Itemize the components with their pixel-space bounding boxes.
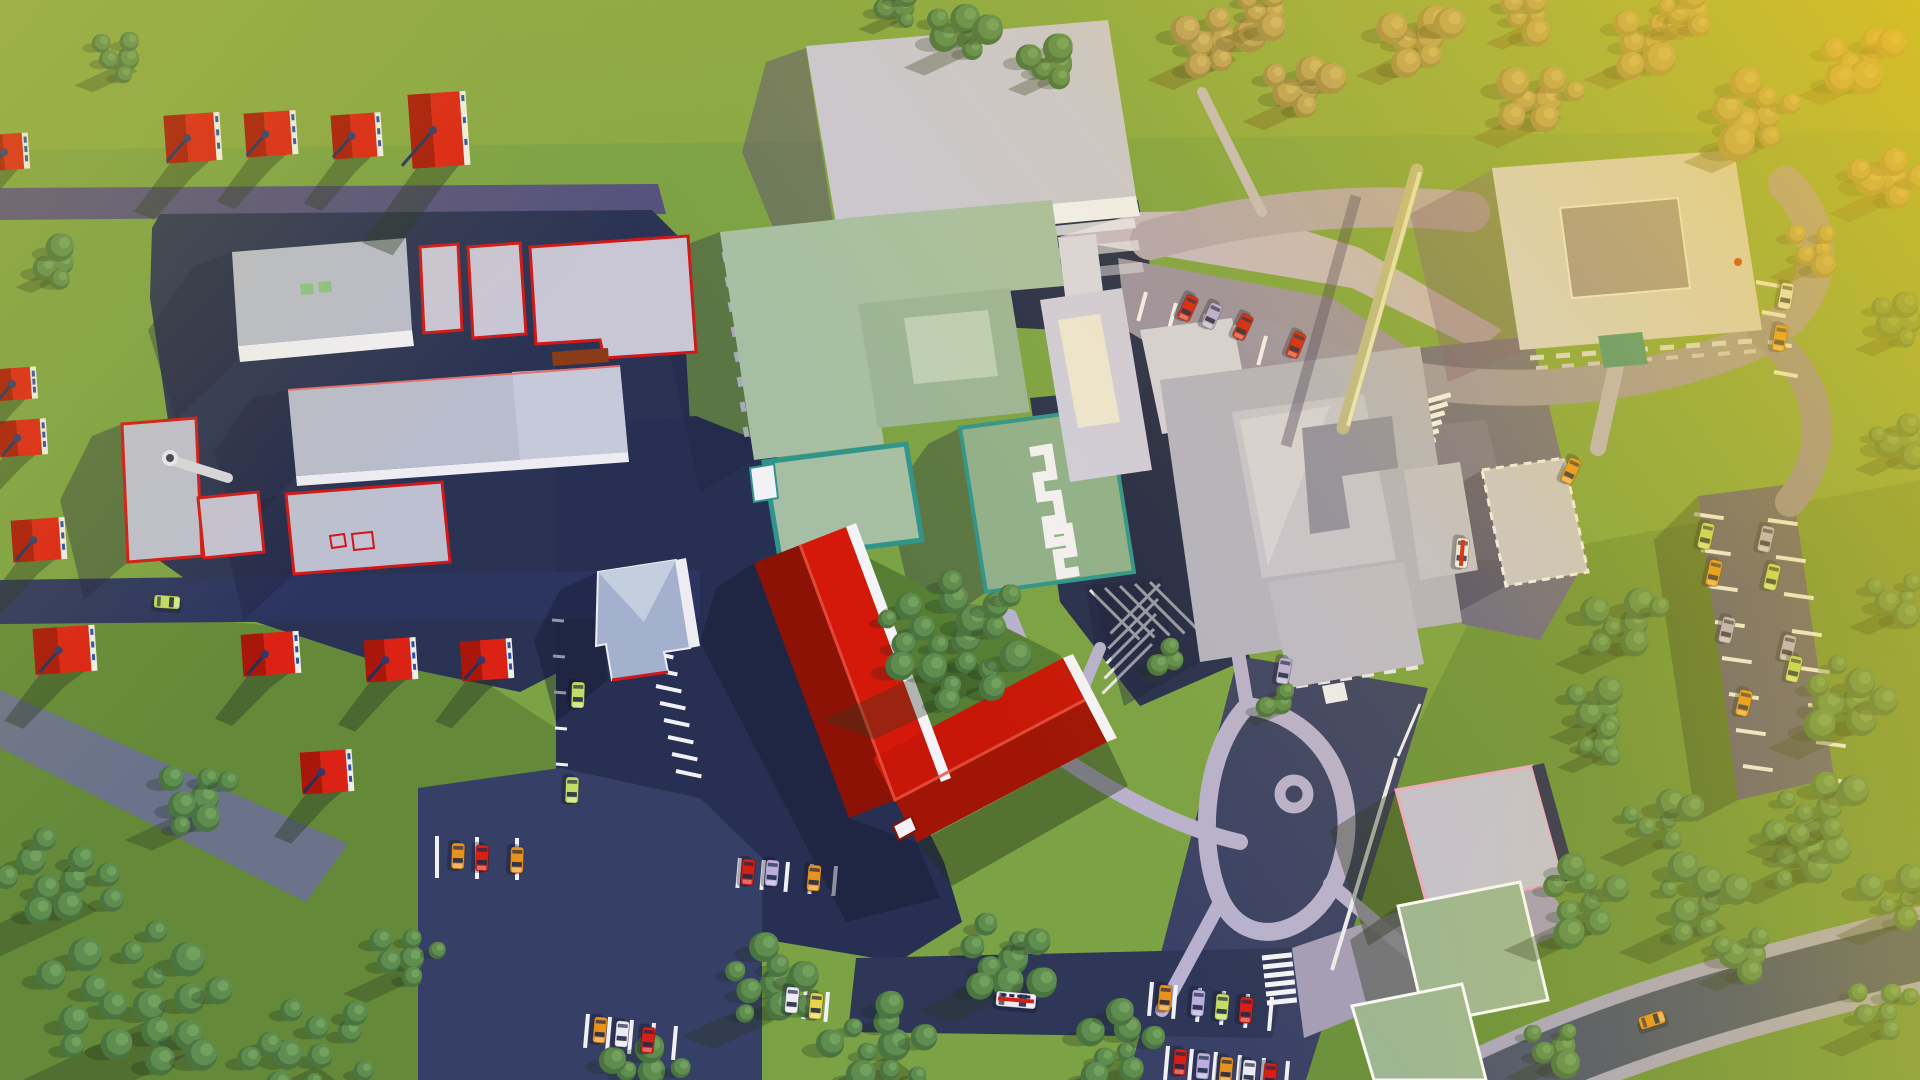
map-render-canvas: Low-poly 3D aerial map of a hospital cam… <box>0 0 1920 1080</box>
layer-sunlight-overlay <box>0 0 1920 1080</box>
campus-3d-map: Low-poly 3D aerial map of a hospital cam… <box>0 0 1920 1080</box>
warm-tint-bottom-right <box>0 0 1920 1080</box>
